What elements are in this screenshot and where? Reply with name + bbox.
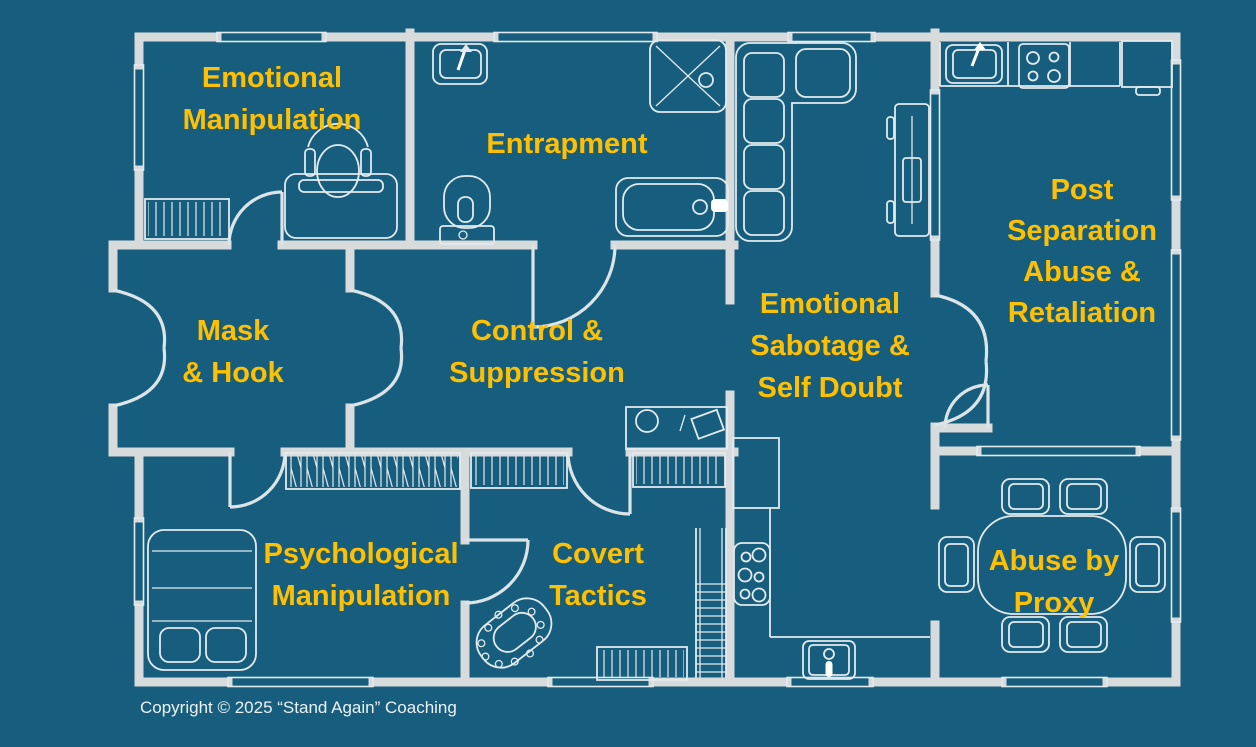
island-counter-icon (733, 438, 779, 508)
window-icon (548, 678, 653, 687)
door-arc-covert-tactics (568, 452, 630, 514)
sink-icon (433, 44, 487, 84)
stove-icon (1019, 44, 1069, 88)
room-label-abuse-by-proxy: Abuse by (989, 545, 1120, 577)
stove-icon (734, 543, 770, 605)
desk-icon (626, 407, 727, 449)
bed-icon (148, 530, 256, 670)
room-labels: Emotional Manipulation Entrapment Post S… (182, 62, 1157, 619)
double-door-living-to-kitchen (935, 295, 987, 425)
shelf-icon (471, 453, 567, 488)
kitchen-sink-icon (946, 42, 1002, 83)
bathtub-icon (616, 178, 728, 236)
floor-plan-page: Emotional Manipulation Entrapment Post S… (0, 0, 1256, 747)
radiator-icon (597, 647, 687, 680)
fridge-icon (1122, 41, 1172, 95)
copyright-text: Copyright © 2025 “Stand Again” Coaching (140, 698, 457, 717)
room-label-post-separation: Retaliation (1008, 297, 1156, 329)
room-label-psychological-manipulation: Manipulation (272, 580, 451, 612)
door-arc-bedroom (230, 452, 285, 507)
floor-plan-diagram: Emotional Manipulation Entrapment Post S… (0, 0, 1256, 747)
window-icon (1172, 508, 1181, 622)
window-icon (135, 65, 144, 170)
room-label-mask-and-hook: & Hook (182, 357, 284, 389)
toilet-icon (440, 176, 494, 244)
room-label-post-separation: Post (1051, 174, 1114, 206)
room-label-abuse-by-proxy: Proxy (1014, 587, 1095, 619)
shower-icon (650, 40, 726, 112)
window-icon (1002, 678, 1107, 687)
tv-unit-icon (887, 104, 929, 236)
room-label-covert-tactics: Tactics (549, 580, 647, 612)
stairs-icon (696, 528, 726, 678)
double-door-entry (113, 290, 165, 406)
desk-icon (285, 174, 397, 238)
room-label-post-separation: Abuse & (1023, 256, 1141, 288)
counter-icon (770, 508, 930, 637)
room-label-control-suppression: Control & (471, 315, 603, 347)
window-icon (977, 447, 1140, 456)
room-label-psychological-manipulation: Psychological (263, 538, 458, 570)
room-label-emotional-sabotage: Sabotage & (750, 330, 910, 362)
room-label-emotional-sabotage: Emotional (760, 288, 900, 320)
radiator-icon (145, 199, 229, 239)
window-icon (135, 518, 144, 605)
double-door-hall-to-control (350, 290, 402, 406)
room-label-mask-and-hook: Mask (197, 315, 270, 347)
window-icon (217, 33, 326, 42)
window-icon (494, 33, 657, 42)
window-icon (788, 33, 875, 42)
kitchen-sink-icon (803, 641, 855, 679)
room-label-emotional-manipulation: Emotional (202, 62, 342, 94)
door-arc-emotional-manipulation (229, 192, 282, 245)
wardrobe-icon (286, 453, 460, 489)
room-label-covert-tactics: Covert (552, 538, 644, 570)
window-icon (931, 90, 940, 240)
room-label-control-suppression: Suppression (449, 357, 625, 389)
radiator-icon (633, 453, 725, 487)
room-label-emotional-manipulation: Manipulation (183, 104, 362, 136)
window-icon (228, 678, 373, 687)
door-arc-bedroom-covert (465, 540, 528, 603)
room-label-post-separation: Separation (1007, 215, 1157, 247)
room-label-emotional-sabotage: Self Doubt (758, 372, 903, 404)
sofa-icon (736, 43, 856, 241)
window-icon (1172, 250, 1181, 440)
room-label-entrapment: Entrapment (486, 128, 647, 160)
